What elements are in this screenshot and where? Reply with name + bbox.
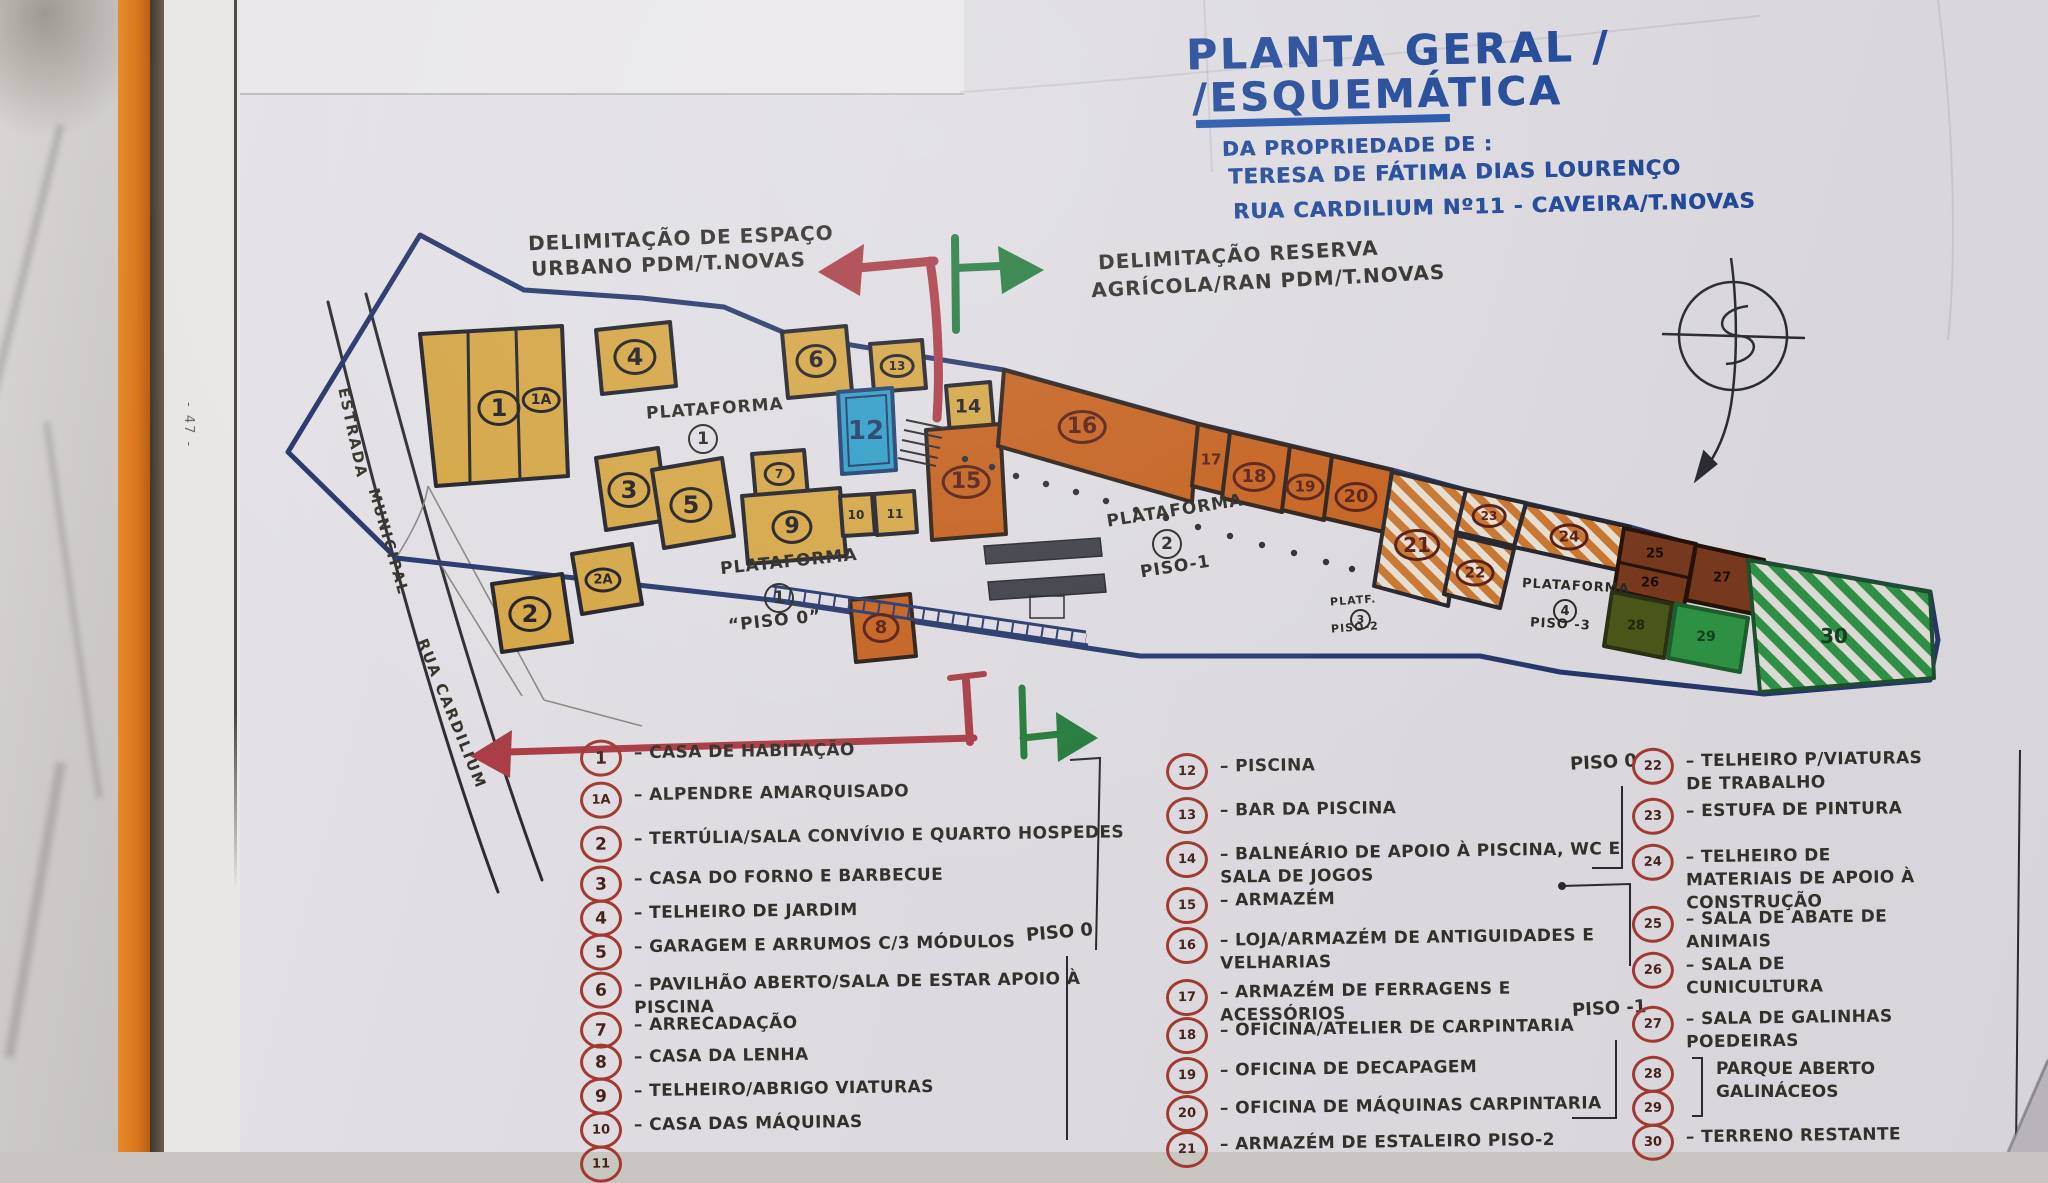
legend-item-text: – PISCINA xyxy=(1220,751,1316,789)
legend-item-19: 19– OFICINA DE DECAPAGEM xyxy=(1166,1051,1646,1095)
building-label-2: 2 xyxy=(508,596,551,632)
legend-item-22: 22– TELHEIRO P/VIATURAS DE TRABALHO xyxy=(1632,744,1933,797)
legend-item-21: 21– ARMAZÉM DE ESTALEIRO PISO-2 xyxy=(1166,1125,1646,1169)
legend-item-26: 26– SALA DE CUNICULTURA xyxy=(1632,948,1933,1001)
legend-item-number: 23 xyxy=(1632,798,1675,836)
legend-item-text: – OFICINA/ATELIER DE CARPINTARIA xyxy=(1220,1012,1575,1054)
legend-item-number: 24 xyxy=(1632,844,1675,882)
legend-group-text: PARQUE ABERTO GALINÁCEOS xyxy=(1716,1058,1956,1104)
legend-item-number: 2 xyxy=(580,825,623,863)
legend-item-12: 12– PISCINA xyxy=(1166,747,1646,791)
platform-number: 2 xyxy=(1152,529,1182,559)
building-label-24: 24 xyxy=(1550,524,1589,551)
legend-item-number: 13 xyxy=(1166,797,1209,835)
legend-item-text: – ARMAZÉM DE ESTALEIRO PISO-2 xyxy=(1220,1126,1555,1168)
legend-item-text: – OFICINA DE DECAPAGEM xyxy=(1220,1053,1478,1094)
legend-item-16: 16– LOJA/ARMAZÉM DE ANTIGUIDADES E VELHA… xyxy=(1166,921,1647,977)
legend-item-15: 15– ARMAZÉM xyxy=(1166,881,1646,925)
legend-item-text: – ARMAZÉM xyxy=(1220,885,1336,924)
legend-item-text: – ESTUFA DE PINTURA xyxy=(1686,794,1903,834)
building-label-9: 9 xyxy=(771,510,812,544)
legend-item-text: – CASA DE HABITAÇÃO xyxy=(634,736,855,776)
legend-item-13: 13– BAR DA PISCINA xyxy=(1166,791,1646,835)
building-label-27: 27 xyxy=(1713,572,1731,585)
building-label-3: 3 xyxy=(607,472,650,508)
legend-item-text: – SALA DE GALINHAS POEDEIRAS xyxy=(1686,1002,1927,1054)
building-label-21: 21 xyxy=(1394,529,1440,561)
building-label-1: 1 xyxy=(477,390,520,426)
legend-item-number: 20 xyxy=(1166,1095,1209,1133)
building-label-23: 23 xyxy=(1472,504,1507,528)
legend-item-27: 27– SALA DE GALINHAS POEDEIRAS xyxy=(1632,1002,1933,1055)
legend-item-number: 27 xyxy=(1632,1006,1675,1044)
building-label-8: 8 xyxy=(863,613,900,643)
legend-item-number: 1A xyxy=(580,781,623,819)
legend-item-text: – SALA DE ABATE DE ANIMAIS xyxy=(1686,902,1927,954)
legend-item-number: 29 xyxy=(1632,1090,1675,1128)
legend-item-number: 28 xyxy=(1632,1056,1675,1094)
building-label-12: 12 xyxy=(848,418,884,444)
building-label-25: 25 xyxy=(1646,548,1664,561)
legend-item-number: 5 xyxy=(580,933,623,971)
building-label-2A: 2A xyxy=(584,568,621,593)
legend-item-number: 26 xyxy=(1632,952,1675,990)
building-label-26: 26 xyxy=(1641,577,1659,590)
legend-item-number: 19 xyxy=(1166,1057,1209,1095)
legend-item-text: – TERTÚLIA/SALA CONVÍVIO E QUARTO HOSPED… xyxy=(634,818,1125,862)
legend-item-number: 6 xyxy=(580,971,623,1009)
legend-item-text: – TELHEIRO P/VIATURAS DE TRABALHO xyxy=(1686,744,1927,796)
legend-item-5: 5– GARAGEM E ARRUMOS C/3 MÓDULOS xyxy=(580,926,1140,971)
legend-item-2: 2– TERTÚLIA/SALA CONVÍVIO E QUARTO HOSPE… xyxy=(580,818,1140,863)
building-label-11: 11 xyxy=(887,508,904,520)
building-label-29: 29 xyxy=(1696,630,1715,644)
compass-icon xyxy=(1662,258,1805,480)
legend-item-number: 9 xyxy=(580,1077,623,1115)
legend-item-number: 4 xyxy=(580,899,623,937)
building-label-18: 18 xyxy=(1232,462,1275,492)
legend-item-text: – SALA DE CUNICULTURA xyxy=(1686,948,1927,1000)
legend-item-number: 3 xyxy=(580,865,623,903)
building-label-5: 5 xyxy=(669,487,712,523)
hatched-walls xyxy=(984,538,1106,618)
legend-item-number: 15 xyxy=(1166,887,1209,925)
legend-item-25: 25– SALA DE ABATE DE ANIMAIS xyxy=(1632,902,1933,955)
platform-piso-label: PISO -3 xyxy=(1530,615,1591,633)
legend-item-number: 8 xyxy=(580,1043,623,1081)
title-line-2: /ESQUEMÁTICA xyxy=(1192,68,1564,122)
building-label-19: 19 xyxy=(1286,474,1325,501)
legend-item-number: 1 xyxy=(580,739,623,777)
building-label-4: 4 xyxy=(613,339,656,375)
building-label-13: 13 xyxy=(880,354,915,378)
photo-of-hand-drawn-site-plan: { "page_number": "- 47 -", "title": { "l… xyxy=(0,0,2048,1152)
legend-item-text: – LOJA/ARMAZÉM DE ANTIGUIDADES E VELHARI… xyxy=(1220,921,1641,976)
legend-item-1: 1– CASA DE HABITAÇÃO xyxy=(580,732,1140,777)
building-label-17: 17 xyxy=(1201,453,1222,468)
building-label-7: 7 xyxy=(764,462,795,486)
legend-item-text: – ALPENDRE AMARQUISADO xyxy=(634,777,910,818)
legend-item-text: – GARAGEM E ARRUMOS C/3 MÓDULOS xyxy=(634,928,1016,970)
building-label-14: 14 xyxy=(955,398,981,417)
legend-item-11: 11 xyxy=(580,1138,1140,1183)
paper-corner xyxy=(2008,1058,2048,1152)
building-label-30: 30 xyxy=(1820,626,1848,646)
building-label-28: 28 xyxy=(1627,620,1645,633)
legend-item-number: 16 xyxy=(1166,927,1209,965)
legend-item-number: 30 xyxy=(1632,1124,1675,1162)
building-label-16: 16 xyxy=(1058,410,1107,444)
building-label-1A: 1A xyxy=(522,387,561,413)
legend-item-18: 18– OFICINA/ATELIER DE CARPINTARIA xyxy=(1166,1011,1646,1055)
legend-item-number: 22 xyxy=(1632,748,1675,786)
legend-item-number: 14 xyxy=(1166,841,1209,879)
building-label-6: 6 xyxy=(795,344,836,378)
legend-item-number: 18 xyxy=(1166,1017,1209,1055)
platform-number: 1 xyxy=(688,424,718,454)
building-label-10: 10 xyxy=(848,509,865,521)
legend-item-number: 25 xyxy=(1632,906,1675,944)
legend-item-23: 23– ESTUFA DE PINTURA xyxy=(1632,794,1932,835)
legend-item-number: 10 xyxy=(580,1111,623,1149)
building-label-15: 15 xyxy=(942,465,991,499)
legend-item-number: 12 xyxy=(1166,753,1209,791)
legend-item-number: 17 xyxy=(1166,979,1209,1017)
legend-item-30: 30– TERRENO RESTANTE xyxy=(1632,1120,1932,1161)
legend-item-1A: 1A– ALPENDRE AMARQUISADO xyxy=(580,774,1140,819)
legend-item-text: – TERRENO RESTANTE xyxy=(1686,1120,1902,1160)
legend-item-number: 21 xyxy=(1166,1131,1209,1169)
legend-item-number: 11 xyxy=(580,1145,623,1183)
building-label-20: 20 xyxy=(1334,482,1377,512)
legend-item-text: – BAR DA PISCINA xyxy=(1220,794,1397,833)
building-label-22: 22 xyxy=(1456,560,1495,587)
reserva-arrow-marker xyxy=(955,238,1044,330)
